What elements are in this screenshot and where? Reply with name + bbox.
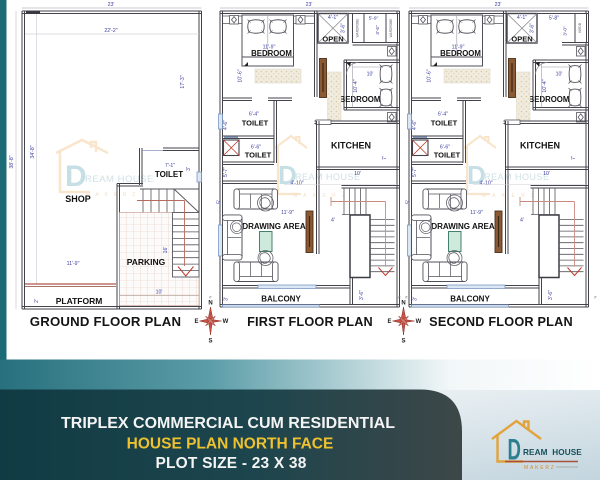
svg-text:TOILET: TOILET <box>242 119 269 128</box>
svg-text:KITCHEN: KITCHEN <box>520 141 560 151</box>
svg-text:11'-9": 11'-9" <box>281 210 294 216</box>
svg-text:2': 2' <box>34 299 40 303</box>
svg-text:WARDROBE: WARDROBE <box>389 19 393 38</box>
svg-text:M A K E R Z: M A K E R Z <box>293 193 348 199</box>
svg-text:OPEN: OPEN <box>322 35 343 44</box>
svg-text:6'-4": 6'-4" <box>249 112 259 118</box>
svg-text:N: N <box>593 295 598 298</box>
svg-text:3'-6": 3'-6" <box>359 290 365 300</box>
svg-text:M A K E R Z: M A K E R Z <box>86 192 137 198</box>
svg-text:5'-8": 5'-8" <box>549 16 559 22</box>
svg-text:GROUND FLOOR PLAN: GROUND FLOOR PLAN <box>30 314 181 329</box>
svg-text:BEDROOM: BEDROOM <box>340 95 381 104</box>
svg-text:4': 4' <box>331 218 335 224</box>
svg-text:38'-8": 38'-8" <box>9 155 15 168</box>
svg-text:10': 10' <box>354 171 361 177</box>
svg-text:SECOND FLOOR PLAN: SECOND FLOOR PLAN <box>429 315 573 329</box>
svg-text:10': 10' <box>156 290 163 296</box>
svg-text:WRDB: WRDB <box>578 23 582 33</box>
svg-text:N: N <box>401 301 405 307</box>
svg-text:6'-6": 6'-6" <box>440 145 450 151</box>
svg-text:3': 3' <box>224 297 230 301</box>
svg-text:22'-2": 22'-2" <box>104 28 117 34</box>
svg-text:BEDROOM: BEDROOM <box>440 49 481 58</box>
svg-text:N: N <box>208 301 212 307</box>
svg-text:TRIPLEX COMMERCIAL CUM RESIDEN: TRIPLEX COMMERCIAL CUM RESIDENTIAL <box>61 415 395 432</box>
svg-text:6'-6": 6'-6" <box>251 145 261 151</box>
svg-text:S: S <box>401 339 405 345</box>
svg-text:PLOT SIZE - 23 X 38: PLOT SIZE - 23 X 38 <box>155 455 306 472</box>
svg-text:KITCHEN: KITCHEN <box>331 141 371 151</box>
svg-text:4'-1": 4'-1" <box>517 15 527 21</box>
svg-text:N: N <box>404 295 409 298</box>
svg-text:TOILET: TOILET <box>245 151 272 160</box>
svg-text:4'-10": 4'-10" <box>290 181 303 187</box>
svg-text:M A K E R Z: M A K E R Z <box>482 193 537 199</box>
svg-text:3'-6": 3'-6" <box>375 25 381 35</box>
svg-text:FIRST FLOOR PLAN: FIRST FLOOR PLAN <box>247 315 373 329</box>
svg-text:10': 10' <box>367 72 374 78</box>
svg-text:MAKERZ: MAKERZ <box>524 465 556 471</box>
svg-text:S: S <box>208 339 212 345</box>
svg-text:4': 4' <box>520 218 524 224</box>
svg-text:BEDROOM: BEDROOM <box>251 49 292 58</box>
svg-text:TOILET: TOILET <box>155 170 183 179</box>
svg-text:W: W <box>416 319 422 325</box>
svg-text:6'-4": 6'-4" <box>438 112 448 118</box>
svg-text:TOILET: TOILET <box>434 151 461 160</box>
svg-text:5': 5' <box>217 200 223 204</box>
svg-text:3'-6": 3'-6" <box>548 290 554 300</box>
svg-text:BALCONY: BALCONY <box>261 295 301 304</box>
svg-text:17'-3": 17'-3" <box>180 75 186 88</box>
svg-text:3'-0": 3'-0" <box>563 26 569 36</box>
svg-text:BEDROOM: BEDROOM <box>529 95 570 104</box>
svg-text:OPEN: OPEN <box>511 35 532 44</box>
svg-text:5'-9": 5'-9" <box>369 16 379 22</box>
svg-text:REAM HOUSE: REAM HOUSE <box>484 172 550 182</box>
svg-text:3'-6": 3'-6" <box>530 23 536 33</box>
svg-text:5': 5' <box>406 200 412 204</box>
svg-text:5'-7": 5'-7" <box>223 167 229 177</box>
svg-text:16': 16' <box>163 247 169 254</box>
svg-text:23': 23' <box>108 2 115 8</box>
svg-text:E: E <box>387 319 391 325</box>
svg-text:SHOP: SHOP <box>65 194 91 204</box>
svg-text:4'-6": 4'-6" <box>223 120 229 130</box>
svg-text:D: D <box>65 160 87 193</box>
svg-text:N: N <box>397 295 402 298</box>
svg-text:TOILET: TOILET <box>431 119 458 128</box>
svg-text:10': 10' <box>556 72 563 78</box>
svg-text:5'-7": 5'-7" <box>412 167 418 177</box>
svg-text:4'-1": 4'-1" <box>328 15 338 21</box>
svg-text:3'-6": 3'-6" <box>341 23 347 33</box>
svg-text:HOUSE PLAN NORTH FACE: HOUSE PLAN NORTH FACE <box>127 436 334 453</box>
svg-text:4'-6": 4'-6" <box>412 120 418 130</box>
svg-text:DRAWING AREA: DRAWING AREA <box>431 222 494 231</box>
svg-text:11'-9": 11'-9" <box>67 261 80 267</box>
svg-text:PARKING: PARKING <box>127 257 166 267</box>
svg-text:DRAWING AREA: DRAWING AREA <box>242 222 305 231</box>
svg-text:7': 7' <box>382 156 388 160</box>
svg-text:3': 3' <box>413 297 419 301</box>
svg-text:PLATFORM: PLATFORM <box>56 296 103 306</box>
svg-text:3': 3' <box>186 167 192 171</box>
svg-text:10'-6": 10'-6" <box>427 69 433 82</box>
svg-text:10'-4": 10'-4" <box>542 79 548 92</box>
svg-text:7': 7' <box>571 156 577 160</box>
svg-text:10': 10' <box>543 171 550 177</box>
svg-text:REAM HOUSE: REAM HOUSE <box>295 172 361 182</box>
svg-text:BALCONY: BALCONY <box>450 295 490 304</box>
svg-text:REAM HOUSE: REAM HOUSE <box>523 448 582 457</box>
svg-text:23': 23' <box>306 2 313 8</box>
svg-text:23': 23' <box>495 2 502 8</box>
svg-text:34'-8": 34'-8" <box>30 145 36 158</box>
svg-text:10'-4": 10'-4" <box>353 79 359 92</box>
svg-text:E: E <box>194 319 198 325</box>
svg-text:WARDROBE: WARDROBE <box>356 19 360 38</box>
svg-text:10'-6": 10'-6" <box>238 69 244 82</box>
svg-text:N: N <box>208 295 213 298</box>
svg-text:11'-9": 11'-9" <box>470 210 483 216</box>
svg-text:7'-1": 7'-1" <box>165 163 175 169</box>
svg-text:4'-10": 4'-10" <box>479 181 492 187</box>
svg-text:W: W <box>223 319 229 325</box>
